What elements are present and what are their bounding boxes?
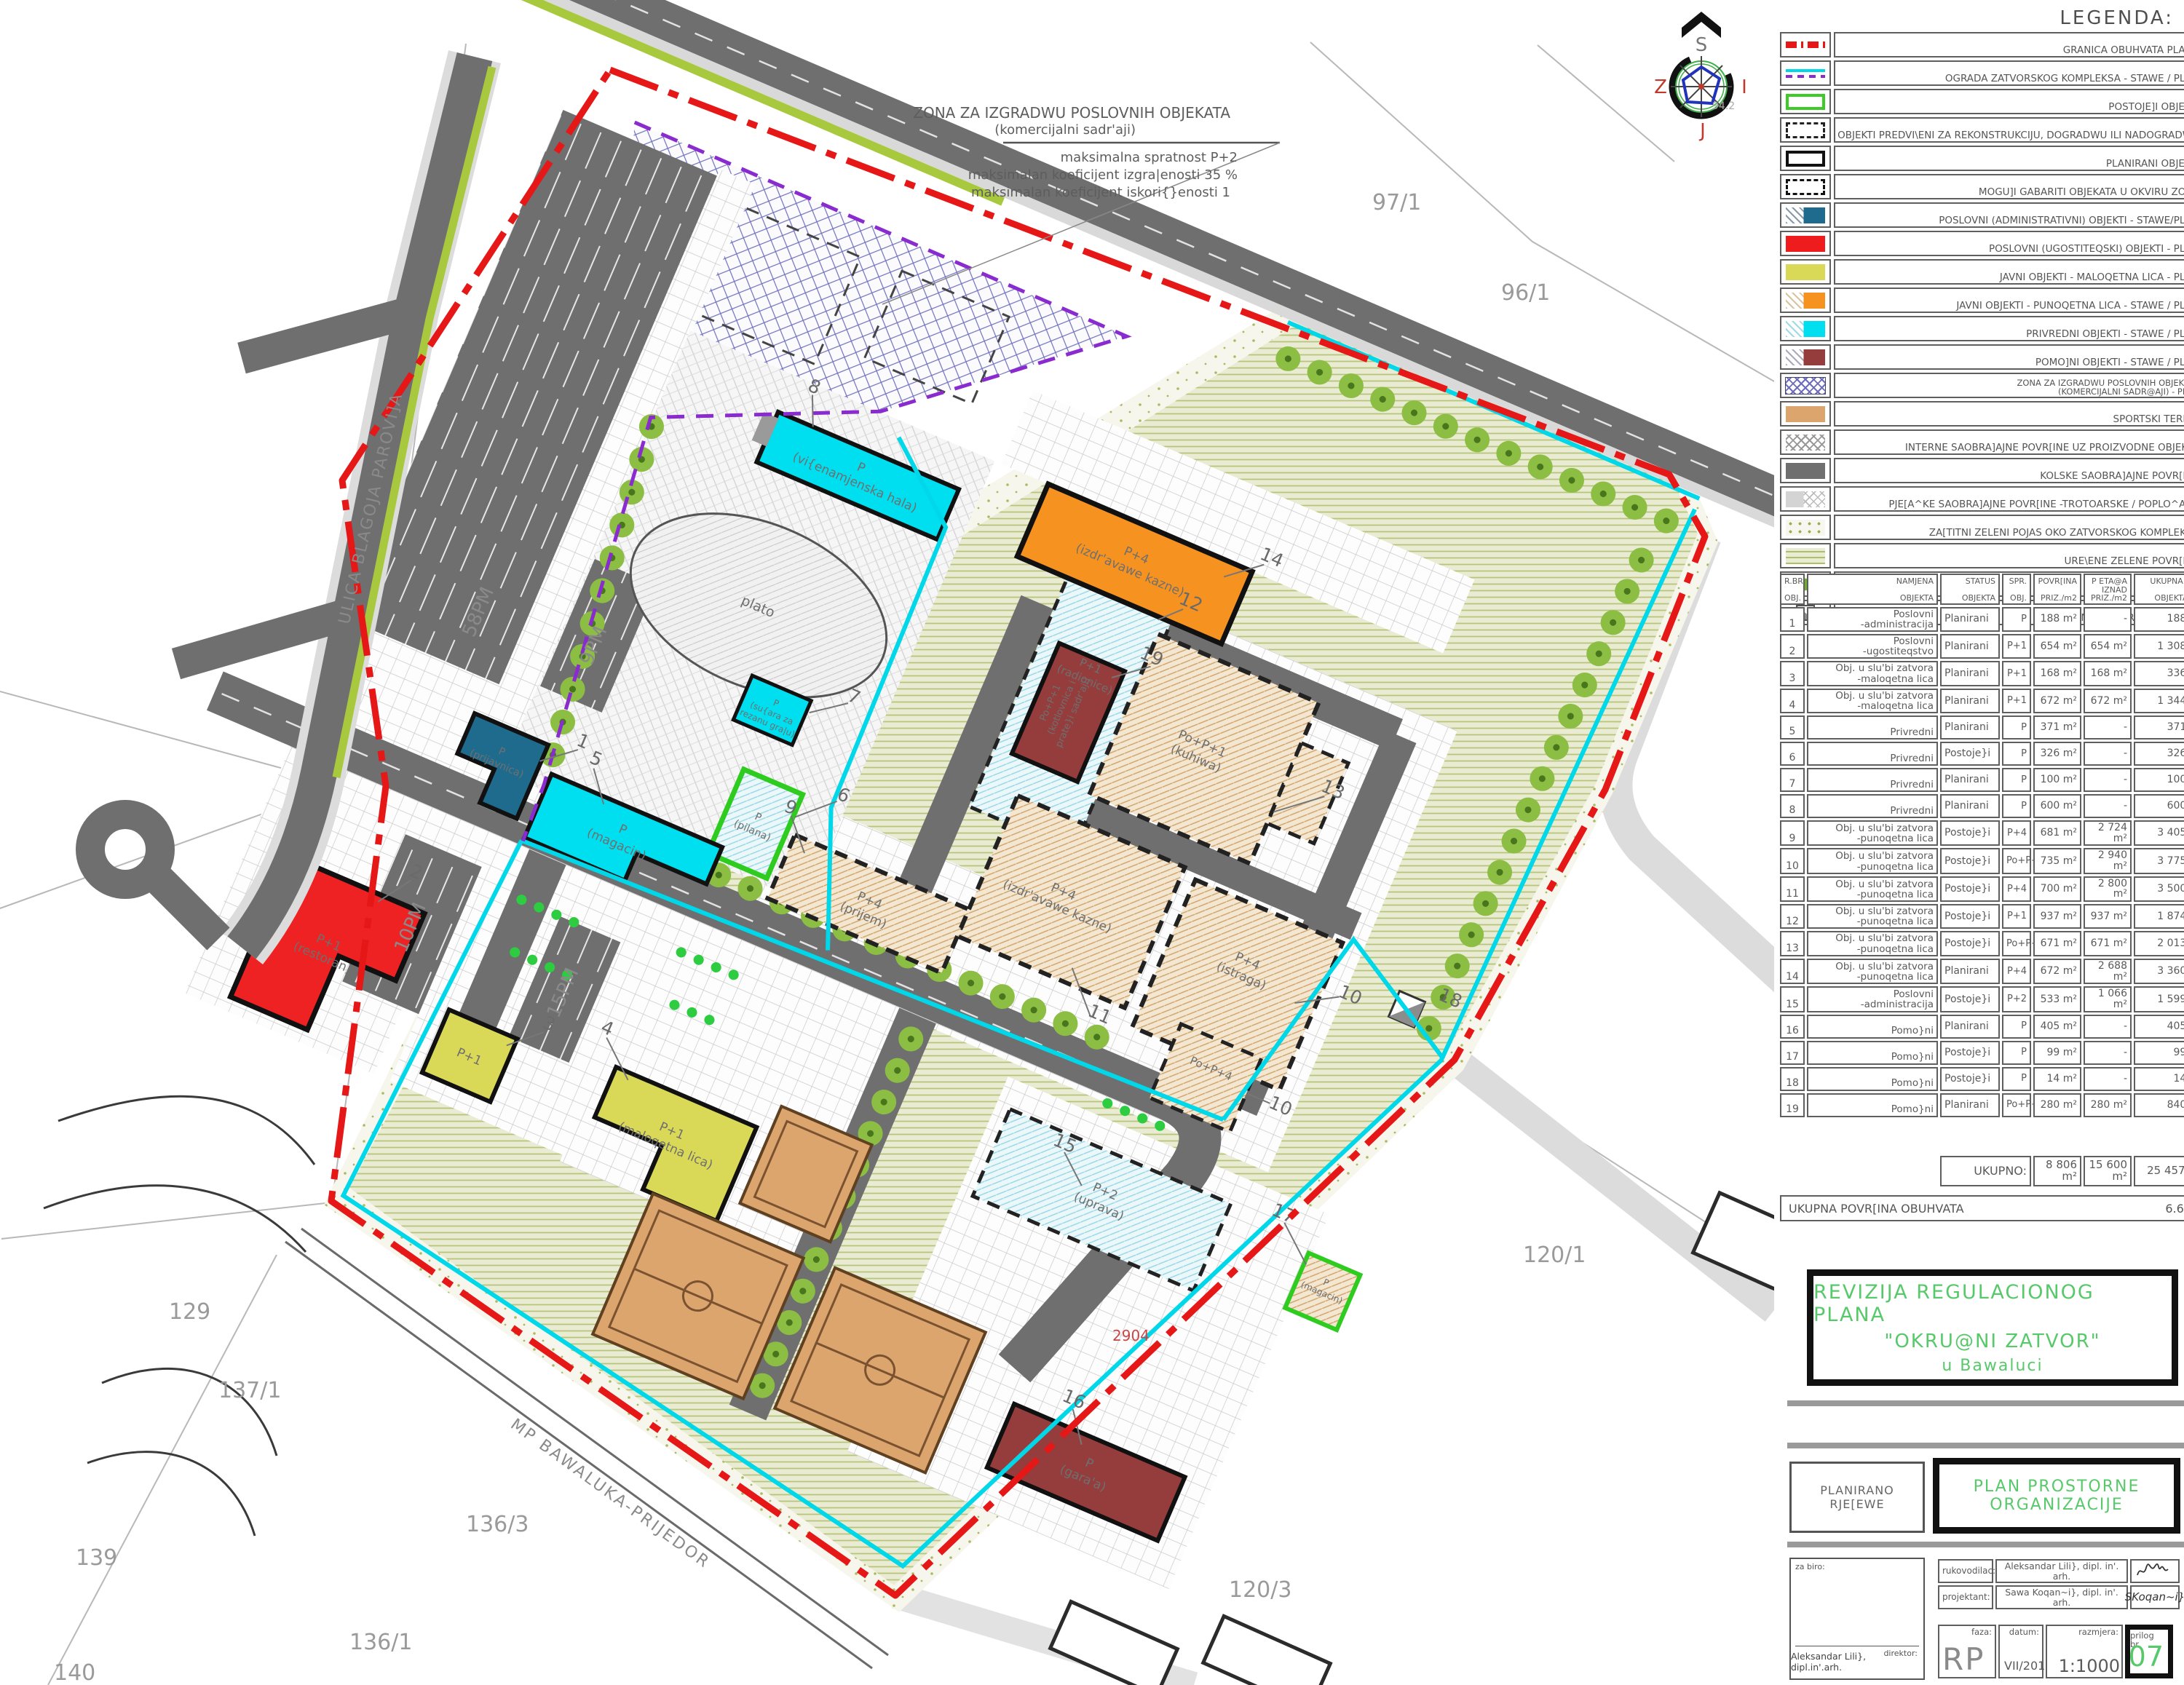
legend-swatch bbox=[1780, 344, 1831, 370]
postojeci-swatch-icon bbox=[1786, 94, 1825, 110]
table-row-namjena: Privredni bbox=[1807, 715, 1938, 740]
table-row-povrsina: 654 m² bbox=[2033, 634, 2081, 659]
table-row-etaza: - bbox=[2084, 794, 2132, 818]
svg-text:129: 129 bbox=[169, 1299, 210, 1325]
svg-text:136/3: 136/3 bbox=[466, 1512, 529, 1537]
table-row-num: 19 bbox=[1780, 1093, 1805, 1117]
totals-etaza: 15 600 m² bbox=[2084, 1156, 2132, 1186]
legend-item: ZA[TITNI ZELENI POJAS OKO ZATVORSKOG KOM… bbox=[1834, 515, 2184, 540]
table-row-num: 10 bbox=[1780, 848, 1805, 873]
legend-swatch bbox=[1780, 288, 1831, 313]
table-row-namjena: Pomo}ni bbox=[1807, 1093, 1938, 1117]
table-row-povrsina: 280 m² bbox=[2033, 1093, 2081, 1117]
table-row-spratnost: P bbox=[2002, 1067, 2031, 1091]
table-row-etaza: - bbox=[2084, 1015, 2132, 1039]
phase-line2: RJE[EWE bbox=[1829, 1497, 1884, 1511]
table-row-ukupno: 1 874 m² bbox=[2134, 904, 2184, 929]
table-row-povrsina: 188 m² bbox=[2033, 607, 2081, 632]
svg-text:I: I bbox=[1741, 76, 1747, 98]
divider bbox=[1787, 1400, 2184, 1406]
table-row-namjena: Obj. u slu'bi zatvora-punoqetna lica bbox=[1807, 876, 1938, 902]
table-row-ukupno: 100 m² bbox=[2134, 768, 2184, 792]
table-row-status: Planirani bbox=[1940, 959, 2000, 984]
granica-swatch-icon bbox=[1786, 37, 1825, 53]
svg-text:140: 140 bbox=[54, 1660, 95, 1685]
table-row-ukupno: 371 m² bbox=[2134, 715, 2184, 740]
table-row-etaza: - bbox=[2084, 1041, 2132, 1065]
table-row-etaza: - bbox=[2084, 742, 2132, 766]
totals-spacer bbox=[1780, 1156, 1938, 1186]
legend-item: POSLOVNI (ADMINISTRATIVNI) OBJEKTI - STA… bbox=[1834, 202, 2184, 228]
rukovodilac-label: rukovodilac: bbox=[1938, 1559, 1993, 1583]
table-totals: UKUPNO:8 806 m²15 600 m²25 457 m² bbox=[1780, 1156, 2184, 1186]
table-row-namjena: Obj. u slu'bi zatvora-punoqetna lica bbox=[1807, 848, 1938, 873]
divider bbox=[1787, 1443, 2184, 1448]
razmjera-cell: razmjera: 1:1000 bbox=[2046, 1625, 2123, 1678]
divider bbox=[1787, 1542, 2184, 1547]
interne-swatch-icon bbox=[1786, 435, 1825, 451]
table-row-povrsina: 735 m² bbox=[2033, 848, 2081, 873]
table-row-ukupno: 336 m² bbox=[2134, 661, 2184, 686]
table-row-etaza: - bbox=[2084, 768, 2132, 792]
totals-povrsina: 8 806 m² bbox=[2033, 1156, 2081, 1186]
rekon-swatch-icon bbox=[1786, 122, 1825, 138]
legend-item: POMO]NI OBJEKTI - STAWE / PLAN bbox=[1834, 344, 2184, 370]
sheet-name-box: PLAN PROSTORNE ORGANIZACIJE bbox=[1933, 1458, 2180, 1534]
legend-swatch bbox=[1780, 231, 1831, 256]
sport-swatch-icon bbox=[1786, 406, 1825, 422]
table-row-etaza: 672 m² bbox=[2084, 689, 2132, 713]
punoqetna-swatch-icon bbox=[1786, 293, 1825, 309]
legend-swatch bbox=[1780, 146, 1831, 171]
table-row-ukupno: 1 599 m² bbox=[2134, 986, 2184, 1012]
legend-swatch bbox=[1780, 60, 1831, 86]
rukovodilac-signature bbox=[2130, 1559, 2180, 1583]
table-row-status: Planirani bbox=[1940, 1093, 2000, 1117]
prilog-value: 07 bbox=[2129, 1643, 2164, 1672]
legend: GRANICA OBUHVATA PLANAOGRADA ZATVORSKOG … bbox=[1780, 32, 2184, 625]
table-row-num: 5 bbox=[1780, 715, 1805, 740]
faza-label: faza: bbox=[1971, 1627, 1992, 1636]
pjesacke-swatch-icon bbox=[1786, 491, 1825, 507]
legend-swatch bbox=[1780, 316, 1831, 341]
table-row-status: Planirani bbox=[1940, 634, 2000, 659]
sheet-name-line1: PLAN PROSTORNE bbox=[1974, 1478, 2140, 1496]
table-row-povrsina: 671 m² bbox=[2033, 931, 2081, 956]
table-row-namjena: Pomo}ni bbox=[1807, 1015, 1938, 1039]
table-row-num: 17 bbox=[1780, 1041, 1805, 1065]
svg-text:S: S bbox=[1696, 34, 1708, 56]
table-row-ukupno: 3 775 m² bbox=[2134, 848, 2184, 873]
projektant-label: projektant: bbox=[1938, 1585, 1993, 1609]
plan-title-line2: "OKRU@NI ZATVOR" bbox=[1884, 1331, 2100, 1352]
table-row-num: 14 bbox=[1780, 959, 1805, 984]
sheet-name-line2: ORGANIZACIJE bbox=[1990, 1496, 2124, 1514]
table-row-povrsina: 14 m² bbox=[2033, 1067, 2081, 1091]
phase-line1: PLANIRANO bbox=[1820, 1483, 1894, 1497]
svg-text:137/1: 137/1 bbox=[218, 1378, 281, 1403]
zona-swatch-icon bbox=[1785, 377, 1826, 395]
legend-item: JAVNI OBJEKTI - MALOQETNA LICA - PLAN bbox=[1834, 259, 2184, 285]
table-row-namjena: Poslovni-administracija bbox=[1807, 986, 1938, 1012]
table-row-ukupno: 99 m² bbox=[2134, 1041, 2184, 1065]
legend-item: POSLOVNI (UGOSTITEQSKI) OBJEKTI - PLAN bbox=[1834, 231, 2184, 256]
bureau-label: za biro: bbox=[1795, 1562, 1825, 1571]
table-row-spratnost: P bbox=[2002, 607, 2031, 632]
razmjera-label: razmjera: bbox=[2078, 1627, 2118, 1636]
svg-text:94.2: 94.2 bbox=[1712, 100, 1735, 112]
table-row-ukupno: 600 m² bbox=[2134, 794, 2184, 818]
total-area-row: UKUPNA POVR[INA OBUHVATA 6.61 ha bbox=[1780, 1195, 2184, 1221]
table-row-etaza: 168 m² bbox=[2084, 661, 2132, 686]
table-row-povrsina: 326 m² bbox=[2033, 742, 2081, 766]
table-row-num: 1 bbox=[1780, 607, 1805, 632]
legend-swatch bbox=[1780, 458, 1831, 483]
table-row-povrsina: 100 m² bbox=[2033, 768, 2081, 792]
table-row-etaza: 671 m² bbox=[2084, 931, 2132, 956]
zastitni-swatch-icon bbox=[1786, 520, 1825, 536]
legend-swatch bbox=[1780, 401, 1831, 427]
table-row-spratnost: Po+P+4 bbox=[2002, 848, 2031, 873]
total-area-value: 6.61 ha bbox=[2165, 1202, 2184, 1216]
legend-item: PRIVREDNI OBJEKTI - STAWE / PLAN bbox=[1834, 316, 2184, 341]
plan-title-line3: u Bawaluci bbox=[1942, 1357, 2043, 1375]
table-row-num: 15 bbox=[1780, 986, 1805, 1012]
table-row-ukupno: 1 344 m² bbox=[2134, 689, 2184, 713]
table-row-spratnost: P+1 bbox=[2002, 904, 2031, 929]
info-panel: LEGENDA: GRANICA OBUHVATA PLANAOGRADA ZA… bbox=[1774, 0, 2184, 1685]
planirani-swatch-icon bbox=[1786, 151, 1825, 167]
table-row-ukupno: 840 m² bbox=[2134, 1093, 2184, 1117]
rukovodilac-name: Aleksandar Lili}, dipl. in'. arh. bbox=[1995, 1559, 2128, 1583]
table-row-etaza: - bbox=[2084, 607, 2132, 632]
legend-swatch bbox=[1780, 259, 1831, 285]
table-row-spratnost: P+1 bbox=[2002, 661, 2031, 686]
compass-rose: S Z I J 94.2 bbox=[1654, 12, 1747, 142]
table-row-spratnost: Po+P+1 bbox=[2002, 1093, 2031, 1117]
table-row-ukupno: 14 m² bbox=[2134, 1067, 2184, 1091]
legend-swatch bbox=[1780, 543, 1831, 568]
kolske-swatch-icon bbox=[1786, 463, 1825, 479]
table-row-status: Postoje}i bbox=[1940, 986, 2000, 1012]
table-row-num: 16 bbox=[1780, 1015, 1805, 1039]
adm-swatch-icon bbox=[1786, 207, 1825, 223]
table-row-povrsina: 700 m² bbox=[2033, 876, 2081, 902]
table-row-etaza: 280 m² bbox=[2084, 1093, 2132, 1117]
table-row-namjena: Pomo}ni bbox=[1807, 1067, 1938, 1091]
legend-swatch bbox=[1780, 202, 1831, 228]
legend-swatch bbox=[1780, 486, 1831, 512]
svg-text:(komercijalni sadr'aji): (komercijalni sadr'aji) bbox=[994, 122, 1136, 138]
table-row-namjena: Obj. u slu'bi zatvora-maloqetna lica bbox=[1807, 661, 1938, 686]
buildings-table: R.BROBJ.NAMJENAOBJEKTASTATUSOBJEKTASPR.O… bbox=[1780, 574, 2184, 1117]
table-row-ukupno: 2 013 m² bbox=[2134, 931, 2184, 956]
table-row-num: 2 bbox=[1780, 634, 1805, 659]
table-row-status: Planirani bbox=[1940, 689, 2000, 713]
table-row-namjena: Poslovni-administracija bbox=[1807, 607, 1938, 632]
table-row-status: Postoje}i bbox=[1940, 742, 2000, 766]
svg-text:97/1: 97/1 bbox=[1372, 190, 1421, 215]
projektant-name: Sawa Koqan~i}, dipl. in'. arh. bbox=[1995, 1585, 2128, 1609]
table-row-ukupno: 405 m² bbox=[2134, 1015, 2184, 1039]
table-row-povrsina: 681 m² bbox=[2033, 820, 2081, 846]
maloqetna-swatch-icon bbox=[1786, 264, 1825, 280]
table-row-status: Postoje}i bbox=[1940, 876, 2000, 902]
table-row-spratnost: P+4 bbox=[2002, 959, 2031, 984]
signatures-table: rukovodilac: Aleksandar Lili}, dipl. in'… bbox=[1938, 1559, 2180, 1609]
table-row-num: 3 bbox=[1780, 661, 1805, 686]
table-row-num: 4 bbox=[1780, 689, 1805, 713]
legend-item: MOGU]I GABARITI OBJEKATA U OKVIRU ZONE bbox=[1834, 174, 2184, 199]
table-row-povrsina: 533 m² bbox=[2033, 986, 2081, 1012]
legend-swatch bbox=[1780, 32, 1831, 58]
table-row-status: Postoje}i bbox=[1940, 848, 2000, 873]
table-row-namjena: Obj. u slu'bi zatvora-maloqetna lica bbox=[1807, 689, 1938, 713]
table-row-namjena: Privredni bbox=[1807, 742, 1938, 766]
table-row-ukupno: 3 360 m² bbox=[2134, 959, 2184, 984]
table-row-status: Planirani bbox=[1940, 661, 2000, 686]
table-row-povrsina: 371 m² bbox=[2033, 715, 2081, 740]
table-row-spratnost: P bbox=[2002, 1041, 2031, 1065]
table-row-etaza: 937 m² bbox=[2084, 904, 2132, 929]
faza-cell: faza: RP bbox=[1938, 1625, 1996, 1678]
svg-text:136/1: 136/1 bbox=[349, 1630, 412, 1655]
stamp-table: faza: RP datum: VII/2011. razmjera: 1:10… bbox=[1938, 1625, 2173, 1678]
table-row-povrsina: 99 m² bbox=[2033, 1041, 2081, 1065]
legend-item: OBJEKTI PREDVI\ENI ZA REKONSTRUKCIJU, DO… bbox=[1834, 117, 2184, 143]
gabariti-swatch-icon bbox=[1786, 179, 1825, 195]
svg-text:maksimalan koeficijent iskori{: maksimalan koeficijent iskori{}enosti 1 bbox=[971, 185, 1230, 200]
table-header: P ETA@AIZNAD PRIZ./m2 bbox=[2084, 574, 2132, 605]
plan-title-line1: REVIZIJA REGULACIONOG PLANA bbox=[1813, 1281, 2172, 1326]
director-name: Aleksandar Lili}, dipl.in'.arh. bbox=[1791, 1651, 1918, 1673]
legend-item: POSTOJE]I OBJEKTI bbox=[1834, 89, 2184, 114]
table-row-povrsina: 405 m² bbox=[2033, 1015, 2081, 1039]
table-row-status: Postoje}i bbox=[1940, 904, 2000, 929]
table-row-namjena: Pomo}ni bbox=[1807, 1041, 1938, 1065]
table-row-povrsina: 168 m² bbox=[2033, 661, 2081, 686]
legend-swatch bbox=[1780, 89, 1831, 114]
svg-text:120/1: 120/1 bbox=[1523, 1242, 1586, 1268]
svg-text:Z: Z bbox=[1654, 76, 1667, 98]
table-row-status: Postoje}i bbox=[1940, 820, 2000, 846]
plan-sheet: P (vi{enamjenska hala) plato P (su{ara z… bbox=[0, 0, 2184, 1685]
table-header: UKUPNA POV.OBJEKTA/m2 bbox=[2134, 574, 2184, 605]
table-row-etaza: 2 940 m² bbox=[2084, 848, 2132, 873]
table-row-num: 9 bbox=[1780, 820, 1805, 846]
svg-text:J: J bbox=[1698, 120, 1706, 142]
table-row-num: 7 bbox=[1780, 768, 1805, 792]
total-area-label: UKUPNA POVR[INA OBUHVATA bbox=[1789, 1202, 1964, 1216]
table-row-namjena: Obj. u slu'bi zatvora-punoqetna lica bbox=[1807, 820, 1938, 846]
table-row-povrsina: 600 m² bbox=[2033, 794, 2081, 818]
legend-swatch bbox=[1780, 429, 1831, 455]
svg-text:maksimalan koeficijent izgra|e: maksimalan koeficijent izgra|enosti 35 % bbox=[968, 167, 1238, 183]
table-row-ukupno: 188 m² bbox=[2134, 607, 2184, 632]
table-row-spratnost: P bbox=[2002, 1015, 2031, 1039]
table-row-num: 6 bbox=[1780, 742, 1805, 766]
table-row-num: 13 bbox=[1780, 931, 1805, 956]
legend-item: INTERNE SAOBRA]AJNE POVR[INE UZ PROIZVOD… bbox=[1834, 429, 2184, 455]
table-header: POVR[INAPRIZ./m2 bbox=[2033, 574, 2081, 605]
table-row-num: 8 bbox=[1780, 794, 1805, 818]
plan-title-box: REVIZIJA REGULACIONOG PLANA "OKRU@NI ZAT… bbox=[1807, 1269, 2178, 1386]
table-row-etaza: 1 066 m² bbox=[2084, 986, 2132, 1012]
table-row-etaza: 2 800 m² bbox=[2084, 876, 2132, 902]
totals-label: UKUPNO: bbox=[1940, 1156, 2031, 1186]
table-row-status: Postoje}i bbox=[1940, 1067, 2000, 1091]
legend-item: ZONA ZA IZGRADWU POSLOVNIH OBJEKATA(KOME… bbox=[1834, 373, 2184, 398]
table-row-status: Planirani bbox=[1940, 768, 2000, 792]
table-row-namjena: Poslovni-ugostiteqstvo bbox=[1807, 634, 1938, 659]
table-row-ukupno: 3 500 m² bbox=[2134, 876, 2184, 902]
legend-swatch bbox=[1780, 117, 1831, 143]
table-row-povrsina: 672 m² bbox=[2033, 689, 2081, 713]
table-row-status: Planirani bbox=[1940, 794, 2000, 818]
table-row-spratnost: P bbox=[2002, 794, 2031, 818]
legend-swatch bbox=[1780, 174, 1831, 199]
table-header: R.BROBJ. bbox=[1780, 574, 1805, 605]
projektant-signature: SKoqan~i} bbox=[2130, 1585, 2180, 1609]
table-row-num: 12 bbox=[1780, 904, 1805, 929]
legend-swatch bbox=[1780, 373, 1831, 398]
legend-swatch bbox=[1780, 515, 1831, 540]
table-row-status: Planirani bbox=[1940, 1015, 2000, 1039]
table-row-spratnost: P bbox=[2002, 768, 2031, 792]
privredni-swatch-icon bbox=[1786, 321, 1825, 337]
table-row-num: 11 bbox=[1780, 876, 1805, 902]
totals-ukupno: 25 457 m² bbox=[2134, 1156, 2184, 1186]
table-row-etaza: 654 m² bbox=[2084, 634, 2132, 659]
legend-item: OGRADA ZATVORSKOG KOMPLEKSA - STAWE / PL… bbox=[1834, 60, 2184, 86]
razmjera-value: 1:1000 bbox=[2059, 1657, 2120, 1676]
table-row-namjena: Privredni bbox=[1807, 768, 1938, 792]
svg-text:96/1: 96/1 bbox=[1501, 280, 1550, 306]
bureau-box: za biro: direktor: Aleksandar Lili}, dip… bbox=[1789, 1558, 1925, 1680]
table-row-ukupno: 3 405 m² bbox=[2134, 820, 2184, 846]
table-row-spratnost: P+2 bbox=[2002, 986, 2031, 1012]
table-row-etaza: - bbox=[2084, 715, 2132, 740]
table-row-num: 18 bbox=[1780, 1067, 1805, 1091]
table-header: NAMJENAOBJEKTA bbox=[1807, 574, 1938, 605]
table-row-namjena: Privredni bbox=[1807, 794, 1938, 818]
divider bbox=[1795, 1646, 1919, 1646]
legend-item: URE\ENE ZELENE POVR[INE bbox=[1834, 543, 2184, 568]
legend-title: LEGENDA: bbox=[2060, 7, 2174, 29]
svg-text:maksimalna spratnost P+2: maksimalna spratnost P+2 bbox=[1061, 150, 1238, 165]
legend-item: SPORTSKI TERENI bbox=[1834, 401, 2184, 427]
legend-item: JAVNI OBJEKTI - PUNOQETNA LICA - STAWE /… bbox=[1834, 288, 2184, 313]
table-row-povrsina: 937 m² bbox=[2033, 904, 2081, 929]
legend-item: PLANIRANI OBJEKTI bbox=[1834, 146, 2184, 171]
svg-text:2904: 2904 bbox=[1112, 1327, 1150, 1344]
table-row-spratnost: P+1 bbox=[2002, 689, 2031, 713]
uredjene-swatch-icon bbox=[1786, 548, 1825, 564]
table-row-spratnost: Po+P+1 bbox=[2002, 931, 2031, 956]
table-row-etaza: 2 724 m² bbox=[2084, 820, 2132, 846]
svg-text:120/3: 120/3 bbox=[1229, 1577, 1291, 1603]
ugost-swatch-icon bbox=[1786, 236, 1825, 252]
legend-item: GRANICA OBUHVATA PLANA bbox=[1834, 32, 2184, 58]
table-row-spratnost: P+4 bbox=[2002, 876, 2031, 902]
table-row-spratnost: P bbox=[2002, 742, 2031, 766]
faza-value: RP bbox=[1942, 1644, 1985, 1676]
table-row-spratnost: P+4 bbox=[2002, 820, 2031, 846]
pomocni-swatch-icon bbox=[1786, 349, 1825, 365]
table-row-etaza: - bbox=[2084, 1067, 2132, 1091]
legend-item: PJE[A^KE SAOBRA]AJNE POVR[INE -TROTOARSK… bbox=[1834, 486, 2184, 512]
table-row-povrsina: 672 m² bbox=[2033, 959, 2081, 984]
svg-text:139: 139 bbox=[76, 1545, 117, 1571]
table-row-status: Postoje}i bbox=[1940, 931, 2000, 956]
legend-item: KOLSKE SAOBRA]AJNE POVR[INE bbox=[1834, 458, 2184, 483]
table-row-spratnost: P+1 bbox=[2002, 634, 2031, 659]
table-row-status: Planirani bbox=[1940, 715, 2000, 740]
table-header: STATUSOBJEKTA bbox=[1940, 574, 2000, 605]
table-row-status: Postoje}i bbox=[1940, 1041, 2000, 1065]
table-row-spratnost: P bbox=[2002, 715, 2031, 740]
svg-text:ZONA ZA IZGRADWU POSLOVNIH OBJ: ZONA ZA IZGRADWU POSLOVNIH OBJEKATA bbox=[913, 104, 1230, 122]
datum-cell: datum: VII/2011. bbox=[1998, 1625, 2043, 1678]
table-row-status: Planirani bbox=[1940, 607, 2000, 632]
ograda-swatch-icon bbox=[1786, 66, 1825, 82]
table-row-namjena: Obj. u slu'bi zatvora-punoqetna lica bbox=[1807, 959, 1938, 984]
table-row-namjena: Obj. u slu'bi zatvora-punoqetna lica bbox=[1807, 931, 1938, 956]
signature-scribble-icon bbox=[2136, 1562, 2174, 1581]
table-header: SPR.OBJ. bbox=[2002, 574, 2031, 605]
prison-complex: P (vi{enamjenska hala) plato P (su{ara z… bbox=[0, 0, 1774, 1685]
phase-box: PLANIRANO RJE[EWE bbox=[1789, 1462, 1925, 1533]
table-row-ukupno: 1 308 m² bbox=[2134, 634, 2184, 659]
table-row-ukupno: 326 m² bbox=[2134, 742, 2184, 766]
table-row-namjena: Obj. u slu'bi zatvora-punoqetna lica bbox=[1807, 904, 1938, 929]
datum-label: datum: bbox=[2009, 1627, 2039, 1636]
table-row-etaza: 2 688 m² bbox=[2084, 959, 2132, 984]
site-plan-map: P (vi{enamjenska hala) plato P (su{ara z… bbox=[0, 0, 1774, 1685]
prilog-cell: prilog br. 07 bbox=[2125, 1625, 2173, 1678]
